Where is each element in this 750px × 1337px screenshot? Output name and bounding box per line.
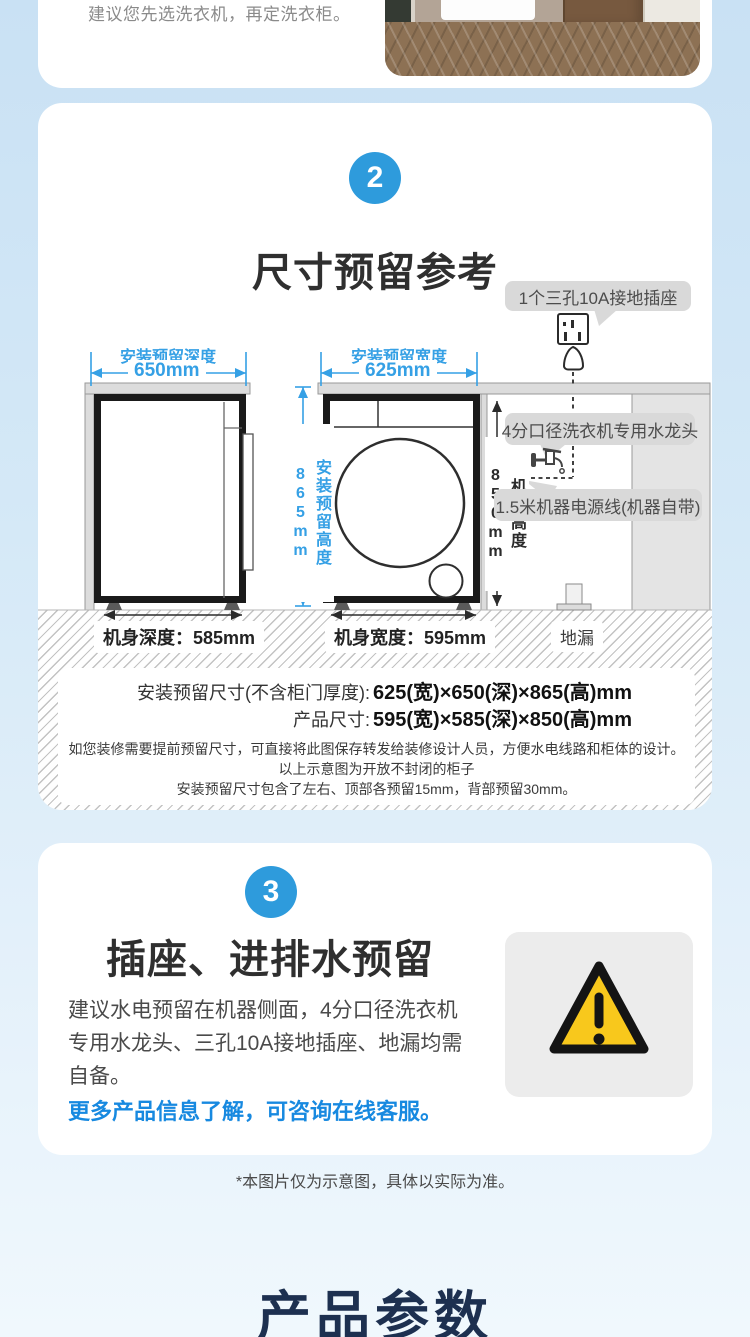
height-dimension-label: 安装预留高度865mm [290,424,334,602]
section3-cta: 更多产品信息了解，可咨询在线客服。 [68,1094,442,1126]
width-dimension-value: 625mm [359,360,437,382]
section2-badge: 2 [349,152,401,204]
product-size-row: 产品尺寸: 595(宽)×585(深)×850(高)mm [58,707,695,734]
image-disclaimer: *本图片仅为示意图，具体以实际为准。 [0,1168,750,1192]
laundry-room-photo [385,0,700,76]
depth-dimension-value: 650mm [128,360,206,382]
section3-badge: 3 [245,866,297,918]
dimension-notes-box: 安装预留尺寸(不含柜门厚度): 625(宽)×650(深)×865(高)mm 产… [58,668,695,805]
product-size-value: 595(宽)×585(深)×850(高)mm [370,707,695,734]
photo-window [385,0,415,22]
photo-wood-floor [385,22,700,76]
photo-cabinet [643,0,700,24]
section3-title: 插座、进排水预留 [40,927,500,985]
photo-washer [441,0,535,20]
product-size-label: 产品尺寸: [58,707,370,734]
section2-badge-number: 2 [367,161,384,195]
section3-badge-number: 3 [263,875,280,909]
section3-body: 建议水电预留在机器侧面，4分口径洗衣机专用水龙头、三孔10A接地插座、地漏均需自… [68,994,474,1093]
product-detail-page: 建议您先选洗衣机，再定洗衣柜。 2 尺寸预留参考 安装预留尺寸(不含柜门厚度):… [0,0,750,1337]
faucet-callout: 4分口径洗衣机专用水龙头 [505,413,695,445]
floor-drain-label: 地漏 [551,621,603,652]
install-size-row: 安装预留尺寸(不含柜门厚度): 625(宽)×650(深)×865(高)mm [58,680,695,707]
socket-callout: 1个三孔10A接地插座 [505,281,691,311]
note-tip-1: 如您装修需要提前预留尺寸，可直接将此图保存转发给装修设计人员，方便水电线路和柜体… [58,739,695,759]
note-tip-2: 以上示意图为开放不封闭的柜子 [58,759,695,779]
warning-box [505,932,693,1097]
intro-text: 建议您先选洗衣机，再定洗衣柜。 [88,0,351,25]
next-section-title: 产品参数 [0,1272,750,1337]
install-size-label: 安装预留尺寸(不含柜门厚度): [58,680,370,707]
photo-cabinet-door [563,0,645,24]
power-cord-callout: 1.5米机器电源线(机器自带) [494,489,702,521]
install-size-value: 625(宽)×650(深)×865(高)mm [370,680,695,707]
body-depth-chip: 机身深度：585mm [94,621,264,653]
note-tip-3: 安装预留尺寸包含了左右、顶部各预留15mm，背部预留30mm。 [58,779,695,799]
body-width-chip: 机身宽度：595mm [325,621,495,653]
